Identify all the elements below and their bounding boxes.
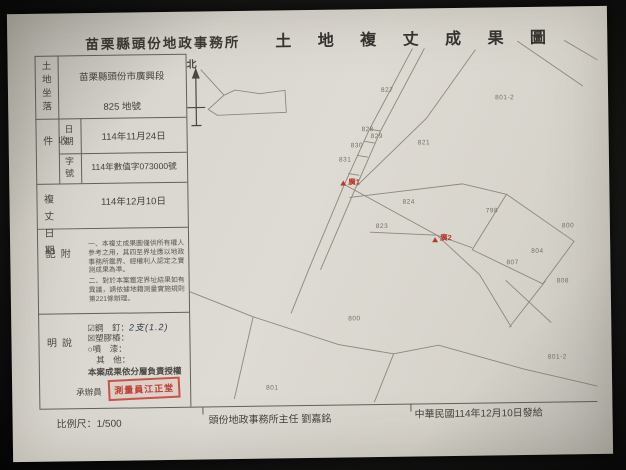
- parcel-number: 831: [339, 156, 351, 163]
- parcel-number: 829: [371, 133, 383, 140]
- parcel-number: 807: [506, 259, 518, 266]
- parcel-number: 821: [418, 139, 430, 146]
- parcel-number: 798: [486, 207, 498, 214]
- photo-background: { "header": { "office": "苗栗縣頭份地政事務所", "t…: [0, 0, 626, 470]
- scanned-document-paper: 苗栗縣頭份地政事務所 土 地 複 丈 成 果 圖 土地坐落 苗栗縣頭份市廣興段 …: [7, 6, 613, 462]
- parcel-number: 808: [557, 277, 569, 284]
- cadastral-map-lines: [7, 6, 613, 462]
- boundary-point-triangle-icon: [340, 180, 346, 185]
- parcel-number: 827: [381, 87, 393, 94]
- parcel-number: 801: [266, 384, 278, 391]
- north-arrow-icon: [187, 67, 206, 125]
- red-point-label: 廣1: [348, 176, 360, 187]
- parcel-number: 800: [562, 222, 574, 229]
- parcel-number: 801-2: [548, 353, 567, 360]
- parcel-number: 824: [403, 199, 415, 206]
- parcel-number: 801-2: [495, 94, 514, 101]
- parcel-number: 800: [348, 315, 360, 322]
- parcel-number: 804: [531, 248, 543, 255]
- boundary-point-triangle-icon: [432, 237, 438, 242]
- red-point-label: 廣2: [440, 232, 452, 243]
- parcel-number: 830: [351, 142, 363, 149]
- parcel-number: 823: [376, 223, 388, 230]
